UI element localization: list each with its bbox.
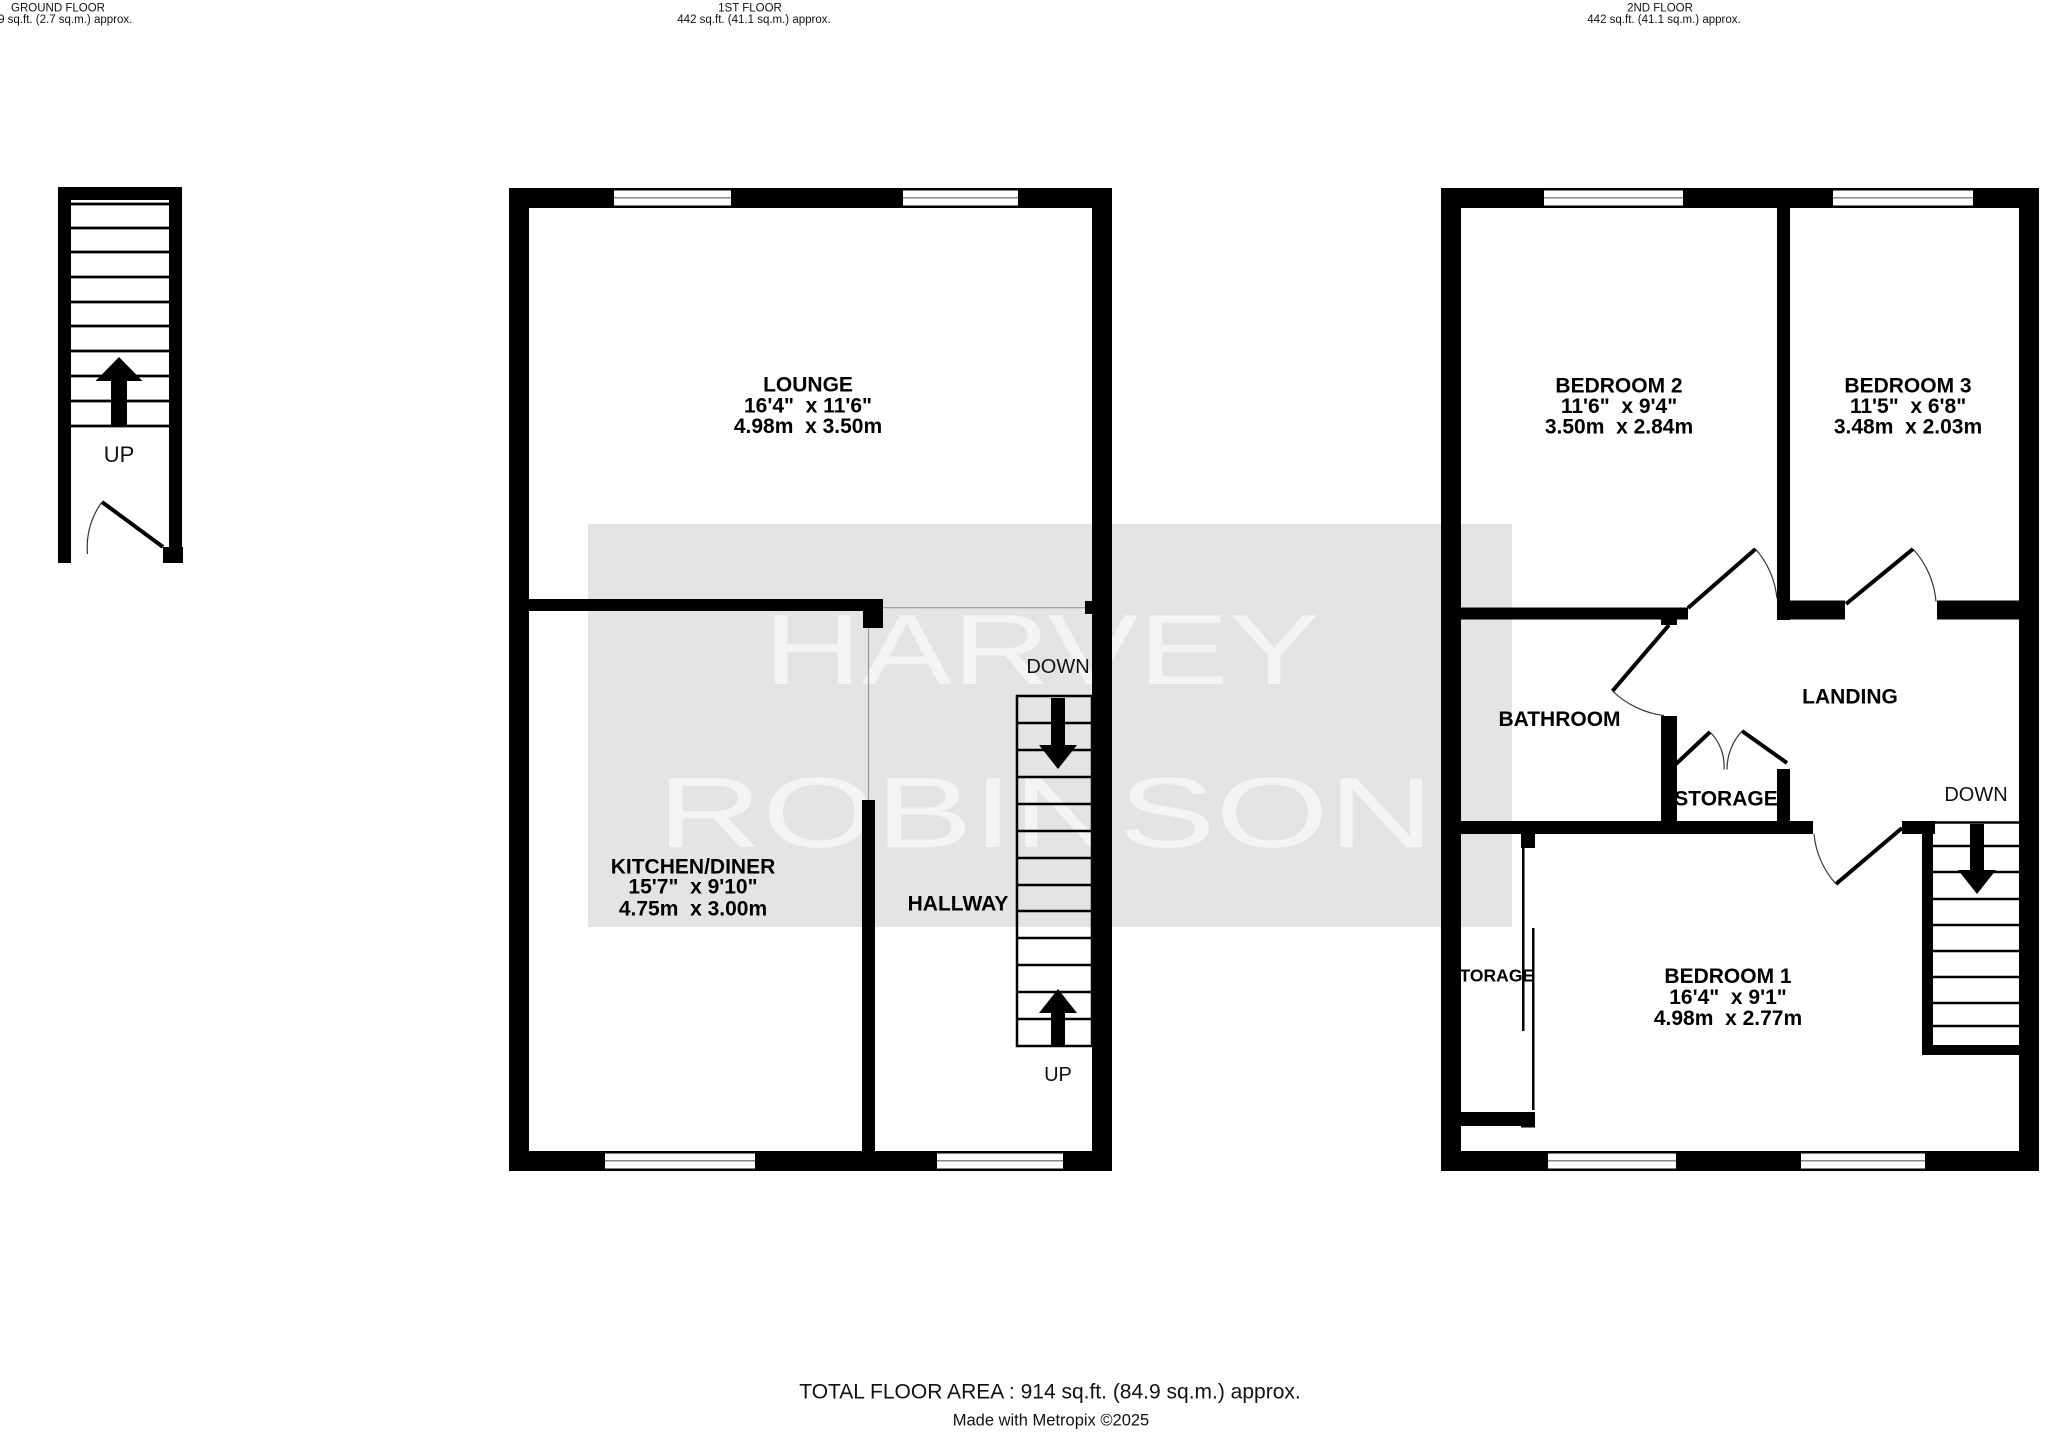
svg-text:4.75m x 3.00m: 4.75m x 3.00m xyxy=(619,898,767,921)
svg-text:LOUNGE: LOUNGE xyxy=(763,374,853,397)
svg-text:4.98m x 3.50m: 4.98m x 3.50m xyxy=(734,415,882,438)
svg-text:3.48m x 2.03m: 3.48m x 2.03m xyxy=(1834,416,1982,439)
svg-text:442 sq.ft. (41.1 sq.m.) approx: 442 sq.ft. (41.1 sq.m.) approx. xyxy=(677,14,830,26)
svg-text:STORAGE: STORAGE xyxy=(1674,788,1777,811)
svg-text:4.98m x 2.77m: 4.98m x 2.77m xyxy=(1654,1007,1802,1030)
svg-text:TOTAL FLOOR AREA : 914 sq.ft.: TOTAL FLOOR AREA : 914 sq.ft. (84.9 sq.m… xyxy=(799,1381,1300,1404)
svg-text:GROUND FLOOR: GROUND FLOOR xyxy=(11,2,105,14)
svg-text:15'7" x 9'10": 15'7" x 9'10" xyxy=(628,876,757,899)
svg-text:HALLWAY: HALLWAY xyxy=(908,893,1009,916)
svg-text:UP: UP xyxy=(104,442,135,467)
svg-text:3.50m x 2.84m: 3.50m x 2.84m xyxy=(1545,416,1693,439)
svg-text:2ND FLOOR: 2ND FLOOR xyxy=(1627,2,1693,14)
svg-text:442 sq.ft. (41.1 sq.m.) approx: 442 sq.ft. (41.1 sq.m.) approx. xyxy=(1587,14,1740,26)
svg-text:16'4" x 9'1": 16'4" x 9'1" xyxy=(1669,986,1786,1009)
svg-text:1ST FLOOR: 1ST FLOOR xyxy=(718,2,782,14)
svg-text:BATHROOM: BATHROOM xyxy=(1498,708,1620,731)
svg-text:Made with Metropix ©2025: Made with Metropix ©2025 xyxy=(953,1412,1150,1430)
svg-text:DOWN: DOWN xyxy=(1026,656,1089,678)
svg-text:BEDROOM 1: BEDROOM 1 xyxy=(1664,965,1792,988)
svg-text:29 sq.ft. (2.7 sq.m.) approx.: 29 sq.ft. (2.7 sq.m.) approx. xyxy=(0,14,132,26)
svg-text:LANDING: LANDING xyxy=(1802,686,1898,709)
svg-text:DOWN: DOWN xyxy=(1944,784,2007,806)
svg-text:ROBINSON: ROBINSON xyxy=(657,757,1434,869)
svg-text:UP: UP xyxy=(1044,1064,1072,1086)
